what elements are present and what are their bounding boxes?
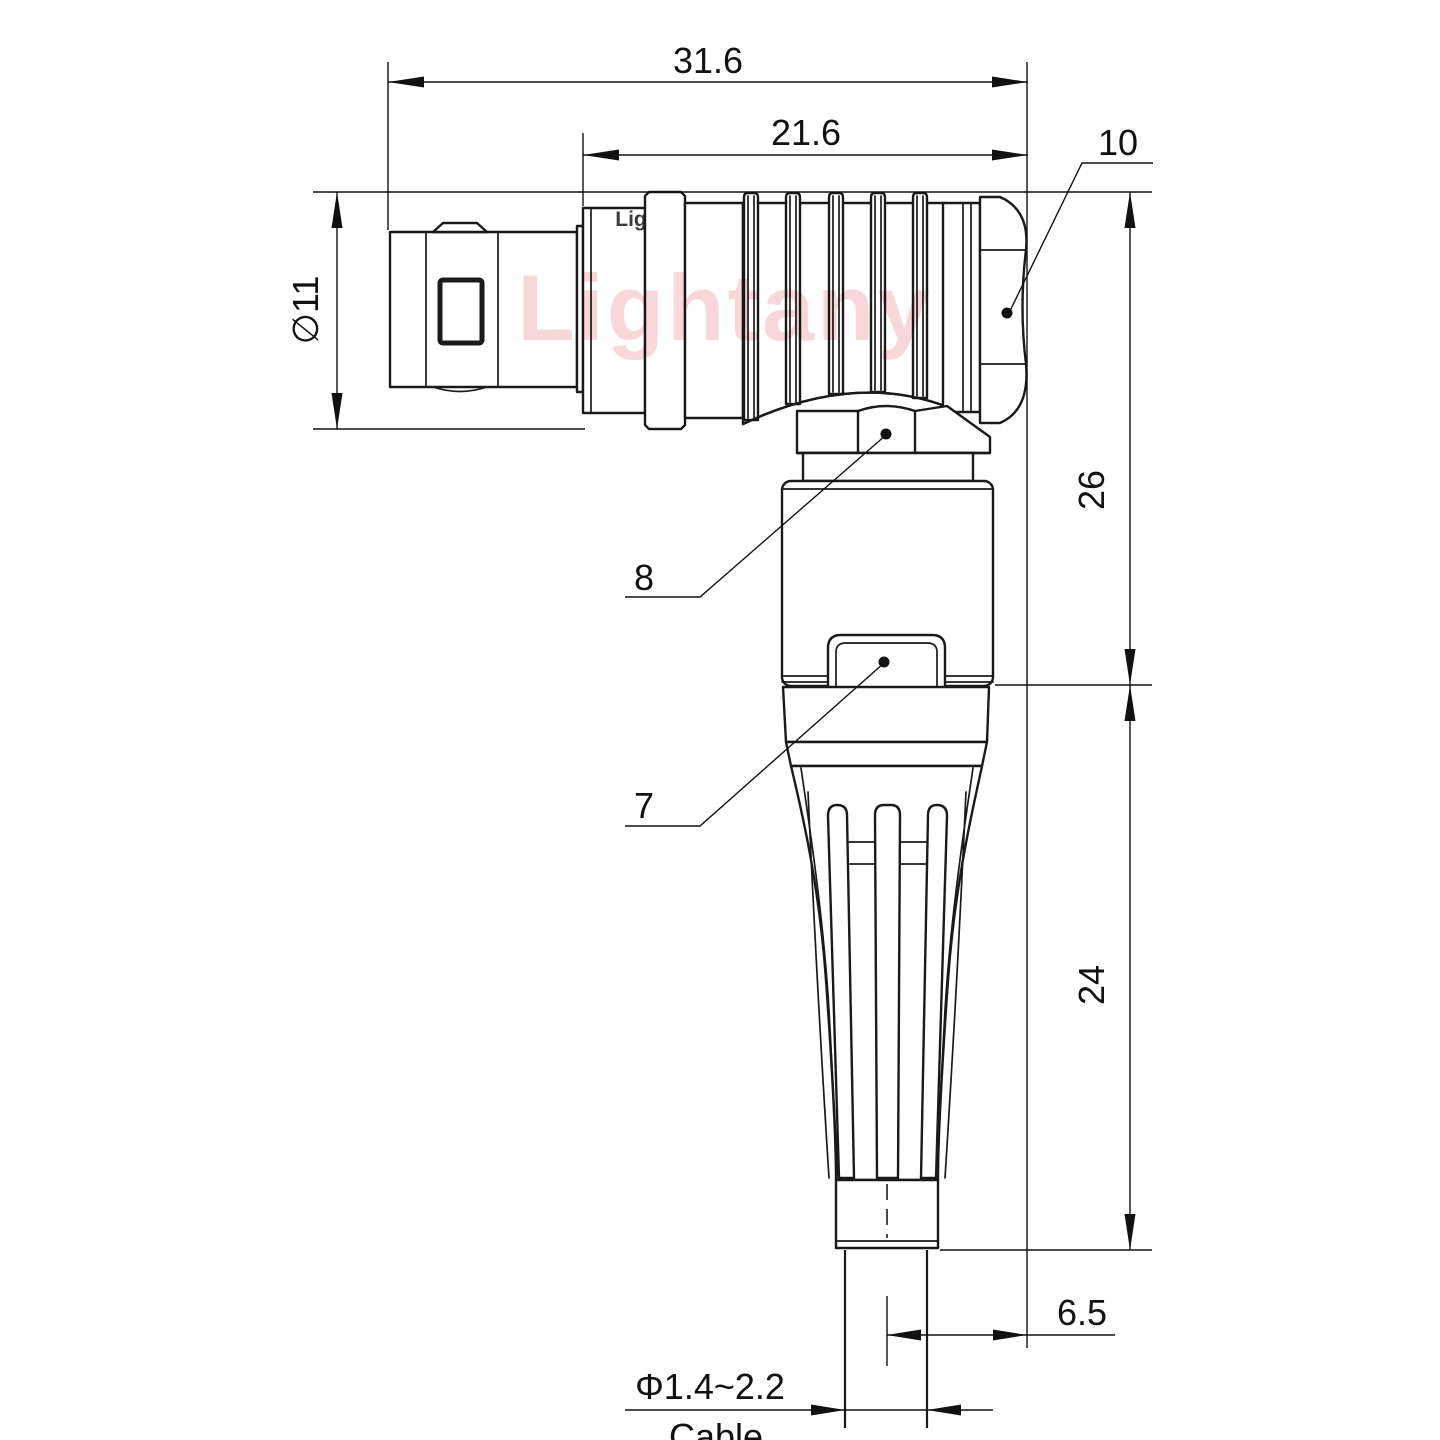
drawing-page: 31.6 21.6 ∅11 26 24 10 8 7 6.5 Φ1.4~2.2 … (0, 0, 1440, 1440)
finger (875, 805, 900, 1178)
dim-shell-length: 21.6 (771, 112, 841, 153)
callout-collet-nut: 7 (634, 785, 654, 826)
dim-front-diameter: ∅11 (285, 276, 326, 345)
dim-lower-height: 24 (1071, 965, 1112, 1005)
callout-rear-nut: 10 (1098, 122, 1138, 163)
collet-sleeve (782, 481, 993, 686)
connector-drawing: 31.6 21.6 ∅11 26 24 10 8 7 6.5 Φ1.4~2.2 … (0, 0, 1440, 1440)
dim-cable-offset: 6.5 (1057, 1292, 1107, 1333)
dim-upper-height: 26 (1071, 470, 1112, 510)
boot-tail (943, 203, 980, 412)
dim-overall-length: 31.6 (673, 40, 743, 81)
rear-hex-nut (980, 197, 1026, 423)
dim-cable-range: Φ1.4~2.2 (635, 1366, 785, 1407)
elbow-neck (803, 453, 973, 481)
cable-label: Cable (669, 1416, 763, 1440)
watermark-fragment: Lig (615, 208, 647, 231)
callout-elbow-nut: 8 (634, 557, 654, 598)
strain-relief (783, 687, 989, 1248)
watermark: Lightany (517, 255, 933, 360)
elbow-hex-nut (797, 406, 990, 459)
leader-10 (1008, 163, 1153, 315)
